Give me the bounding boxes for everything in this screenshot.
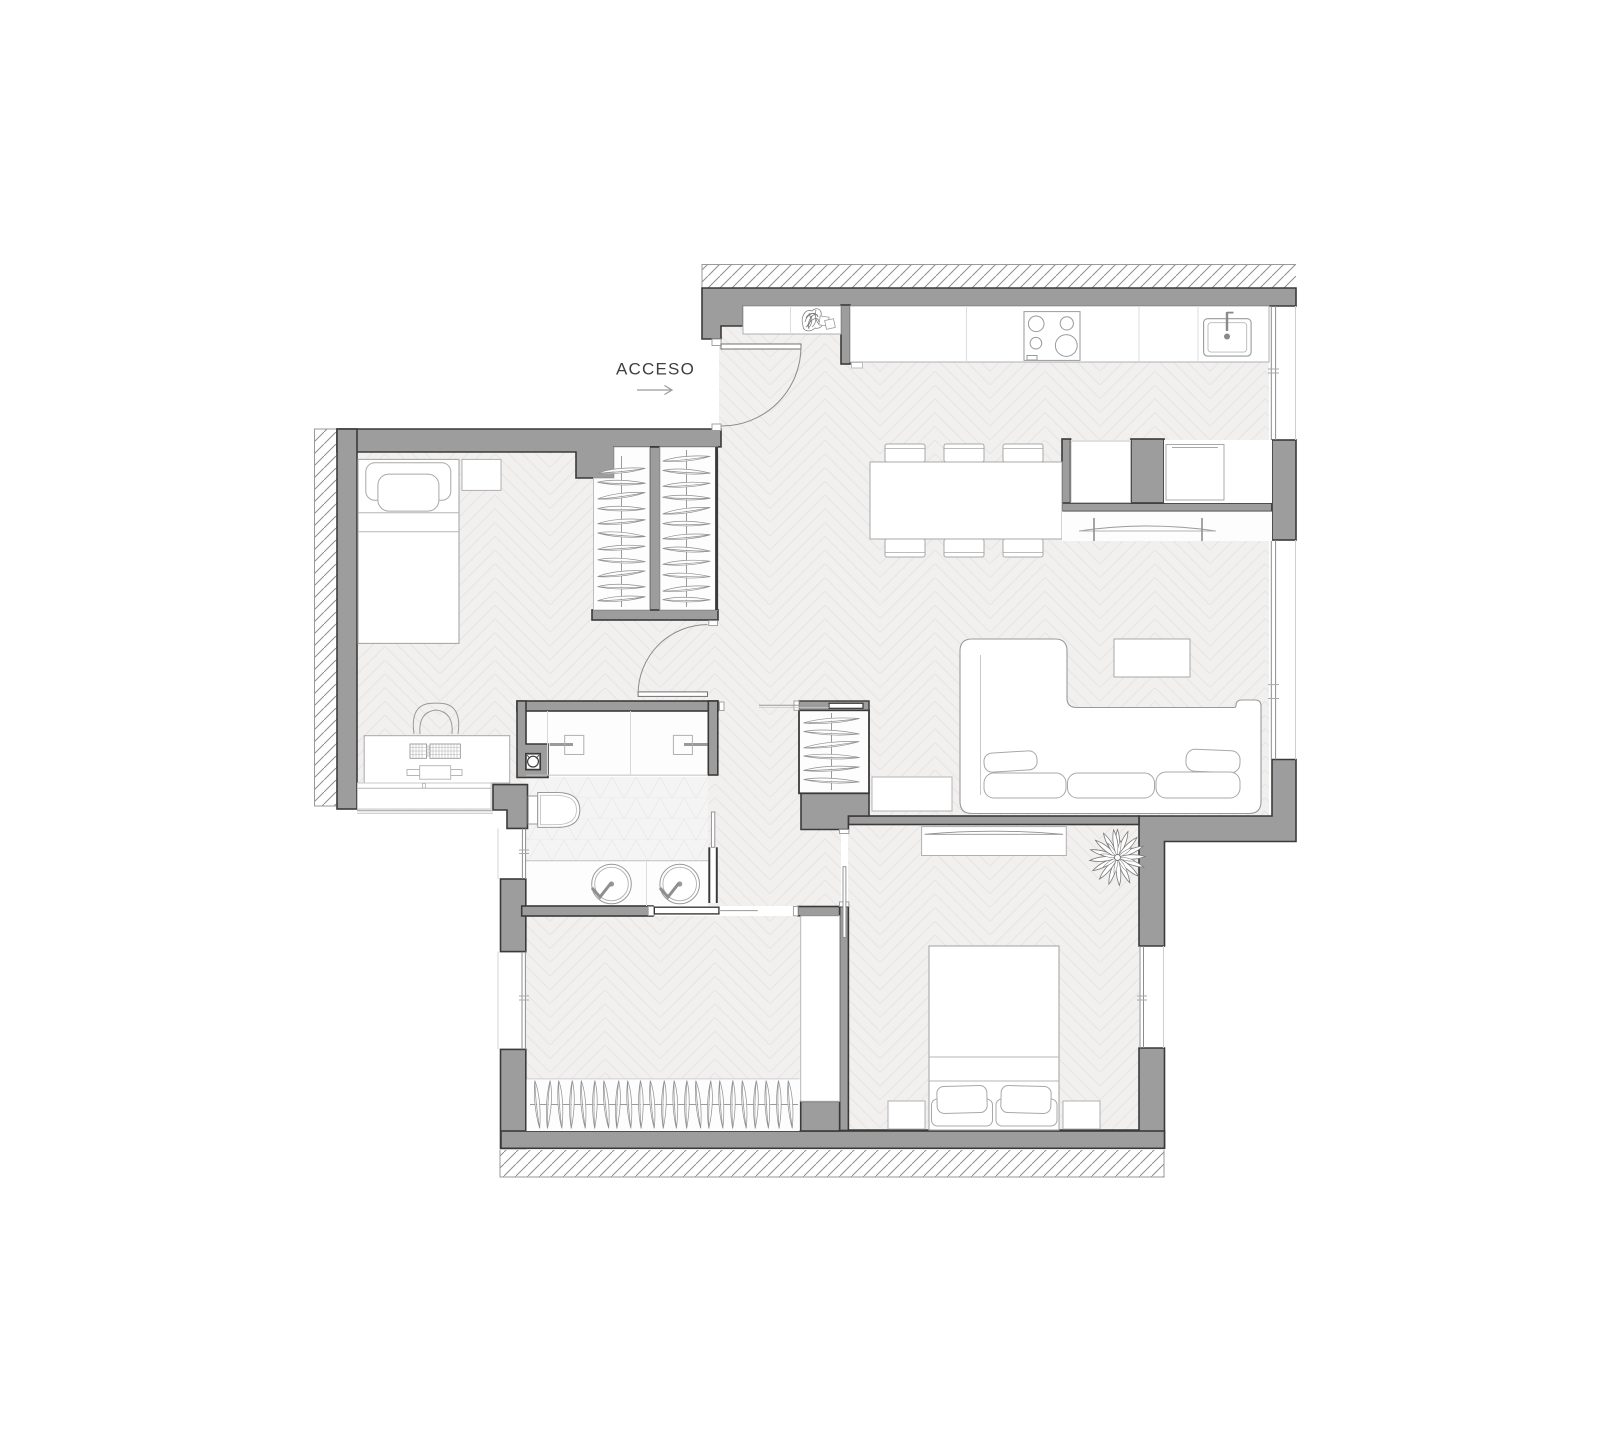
svg-text:ACCESO: ACCESO	[616, 360, 695, 379]
